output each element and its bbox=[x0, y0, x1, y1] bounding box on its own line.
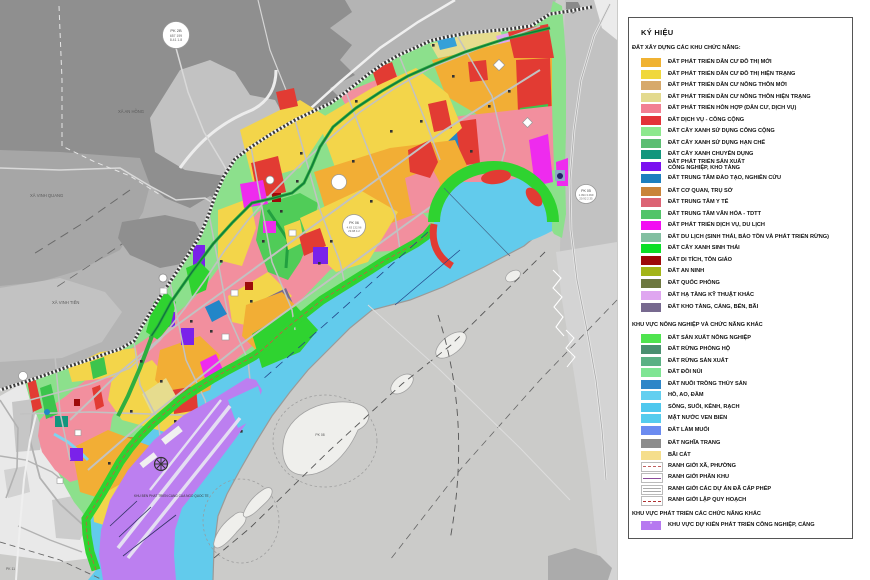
svg-text:8.41 1.8: 8.41 1.8 bbox=[170, 38, 182, 42]
svg-text:KHU BEN PHAT TRIEN CANG CUA NG: KHU BEN PHAT TRIEN CANG CUA NGO QUOC TE bbox=[134, 494, 209, 498]
svg-text:20.92 2.35: 20.92 2.35 bbox=[579, 197, 593, 201]
svg-text:XÃ VINH TIẾN: XÃ VINH TIẾN bbox=[52, 300, 79, 305]
svg-text:PK 08: PK 08 bbox=[315, 433, 324, 437]
svg-text:PK 06: PK 06 bbox=[349, 221, 359, 225]
svg-text:XÃ VINH QUANG: XÃ VINH QUANG bbox=[30, 193, 63, 198]
svg-text:PK 2B: PK 2B bbox=[170, 28, 182, 33]
svg-text:PK 11: PK 11 bbox=[6, 567, 15, 571]
svg-text:XÃ AN HỒNG: XÃ AN HỒNG bbox=[118, 109, 144, 114]
svg-text:29.98 4.2: 29.98 4.2 bbox=[348, 229, 360, 233]
